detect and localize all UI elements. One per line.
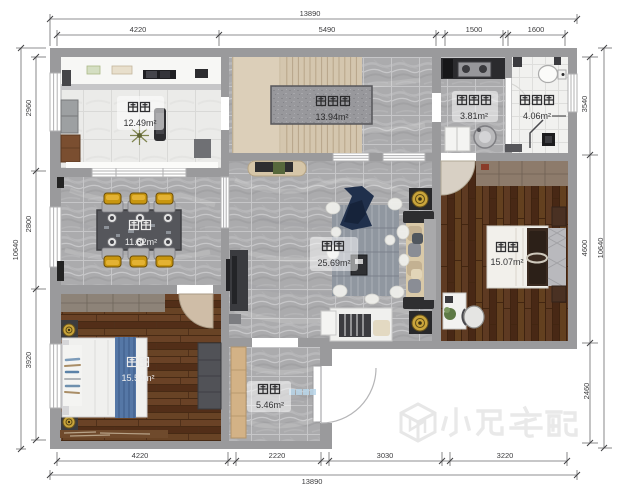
svg-text:3.81m²: 3.81m² xyxy=(460,111,488,121)
svg-text:10640: 10640 xyxy=(596,238,605,259)
svg-text:12.49m²: 12.49m² xyxy=(123,118,156,128)
svg-text:3030: 3030 xyxy=(377,451,394,460)
svg-text:15.07m²: 15.07m² xyxy=(490,257,523,267)
svg-text:13890: 13890 xyxy=(302,477,323,486)
svg-text:2960: 2960 xyxy=(24,100,33,117)
svg-text:10640: 10640 xyxy=(11,240,20,261)
svg-text:4600: 4600 xyxy=(580,240,589,257)
svg-text:3540: 3540 xyxy=(580,96,589,113)
svg-text:4220: 4220 xyxy=(130,25,147,34)
svg-text:4220: 4220 xyxy=(132,451,149,460)
svg-text:1600: 1600 xyxy=(528,25,545,34)
svg-text:2220: 2220 xyxy=(269,451,286,460)
svg-text:11.82m²: 11.82m² xyxy=(125,237,157,247)
svg-text:1500: 1500 xyxy=(466,25,483,34)
svg-text:13890: 13890 xyxy=(300,9,321,18)
svg-text:15.54m²: 15.54m² xyxy=(121,373,154,383)
svg-text:5490: 5490 xyxy=(319,25,336,34)
svg-text:2800: 2800 xyxy=(24,216,33,233)
svg-text:4.06m²: 4.06m² xyxy=(523,111,551,121)
svg-text:3220: 3220 xyxy=(497,451,514,460)
svg-text:25.69m²: 25.69m² xyxy=(317,258,350,268)
svg-text:13.94m²: 13.94m² xyxy=(315,112,348,122)
svg-text:2460: 2460 xyxy=(582,383,591,400)
svg-text:3920: 3920 xyxy=(24,352,33,369)
svg-text:5.46m²: 5.46m² xyxy=(256,400,284,410)
